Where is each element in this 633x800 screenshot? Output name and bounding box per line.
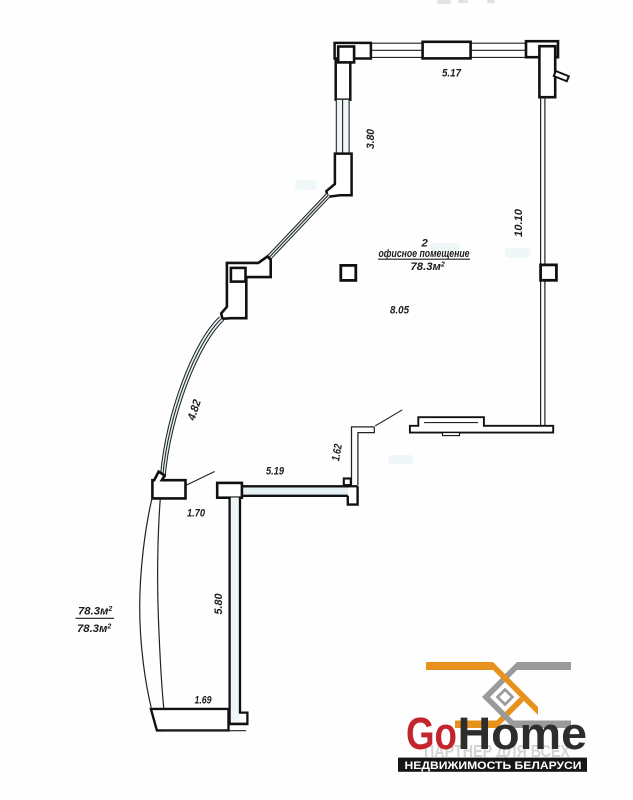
svg-text:офисное помещение: офисное помещение bbox=[379, 248, 470, 260]
svg-text:5.17: 5.17 bbox=[442, 68, 462, 80]
svg-text:3.80: 3.80 bbox=[365, 128, 377, 149]
svg-text:5.19: 5.19 bbox=[266, 466, 285, 478]
svg-text:8.05: 8.05 bbox=[390, 305, 410, 317]
svg-text:78.3м2: 78.3м2 bbox=[77, 623, 111, 635]
svg-text:1.69: 1.69 bbox=[195, 695, 213, 707]
svg-text:10.10: 10.10 bbox=[513, 208, 525, 237]
svg-text:78.3м2: 78.3м2 bbox=[78, 606, 112, 618]
svg-text:НЕДВИЖИМОСТЬ БЕЛАРУСИ: НЕДВИЖИМОСТЬ БЕЛАРУСИ bbox=[405, 760, 582, 772]
svg-text:1.70: 1.70 bbox=[187, 508, 206, 520]
svg-text:Home: Home bbox=[458, 708, 588, 759]
svg-text:Go: Go bbox=[406, 708, 457, 759]
svg-text:5.80: 5.80 bbox=[213, 593, 225, 615]
svg-text:78.3м2: 78.3м2 bbox=[411, 261, 445, 273]
